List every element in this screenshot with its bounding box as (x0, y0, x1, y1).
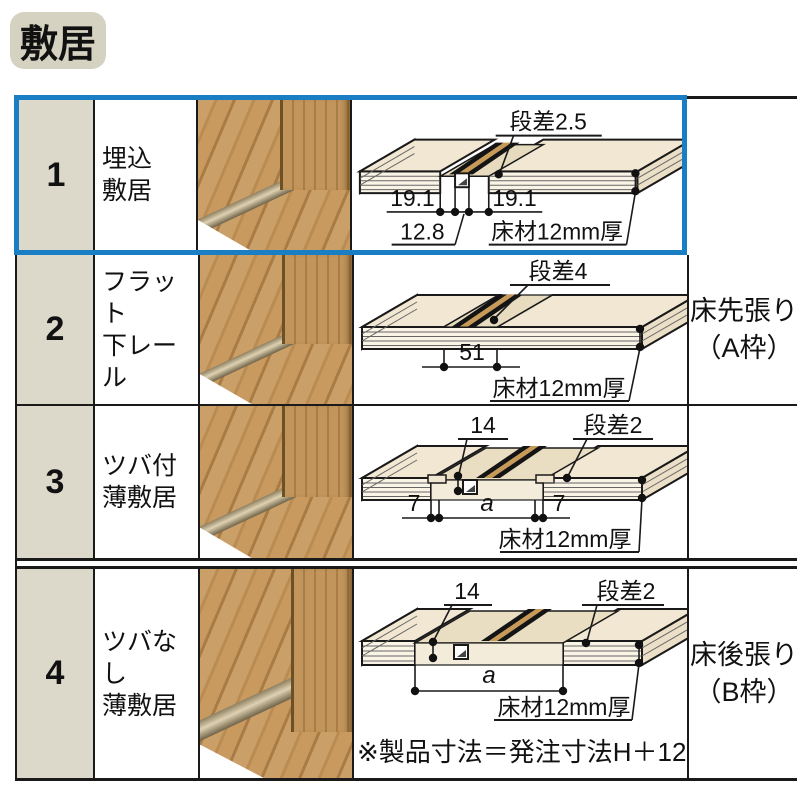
photo-corner (198, 220, 250, 250)
row-1-diagram: 段差2.5 19.1 19.1 12.8 床材12mm厚 (352, 100, 682, 250)
photo-door (282, 255, 352, 344)
dim-right-label: 19.1 (492, 185, 536, 211)
row-2-diagram: 段差4 51 床材12mm厚 (354, 255, 689, 404)
dim-left-label: 19.1 (390, 185, 434, 211)
photo-door (280, 100, 350, 190)
wood-floor-photo (200, 569, 352, 778)
row-2-photo (200, 255, 354, 404)
row-3-name-line1: ツバ付 (102, 450, 198, 482)
embedded-sill-section-drawing: 段差2.5 19.1 19.1 12.8 床材12mm厚 (352, 100, 682, 249)
row-4-diagram: 14 段差2 a 床材12mm厚 ※製品寸法＝発注寸法H＋12 (354, 569, 689, 778)
row-4-number: 4 (17, 569, 95, 778)
dim-center-label: a (480, 490, 493, 517)
photo-door (282, 406, 352, 497)
row-3-diagram: 14 段差2 7 a 7 床材12mm厚 (354, 406, 689, 558)
row-1-name: 埋込 敷居 (95, 100, 198, 250)
dim-center-label: 51 (459, 339, 485, 365)
row-1-name-line1: 埋込 (102, 143, 196, 175)
flanged-thin-sill-section-drawing: 14 段差2 7 a 7 床材12mm厚 (354, 406, 687, 558)
row-option-4[interactable]: 4 ツバなし 薄敷居 (15, 569, 797, 781)
page-title: 敷居 (10, 12, 106, 69)
flat-rail-section-drawing: 段差4 51 床材12mm厚 (354, 255, 687, 405)
row-3-number: 3 (17, 406, 95, 558)
catalog-page: 敷居 1 埋込 敷居 (0, 0, 800, 800)
wood-floor-photo (200, 406, 352, 558)
install-type-b-label: 床後張り （B枠） (689, 569, 799, 778)
step-height-label: 段差4 (529, 258, 588, 284)
flangeless-thin-sill-section-drawing: 14 段差2 a 床材12mm厚 (354, 569, 687, 727)
wood-floor-photo (198, 100, 350, 250)
row-option-3[interactable]: 3 ツバ付 薄敷居 (15, 406, 797, 558)
dim-bottom-label: 12.8 (400, 219, 444, 245)
row-option-1-selected[interactable]: 1 埋込 敷居 (14, 95, 687, 255)
floor-thickness-label: 床材12mm厚 (498, 694, 631, 720)
row-3-name-line2: 薄敷居 (102, 482, 198, 514)
row-option-2[interactable]: 2 フラット 下レール (15, 255, 797, 406)
row-2-number: 2 (17, 255, 95, 404)
row-2-name-line2: 下レール (102, 330, 198, 394)
install-type-b-line2: （B枠） (694, 674, 793, 710)
row-3-photo (200, 406, 354, 558)
dim-right-label: 7 (553, 490, 566, 516)
photo-corner (200, 745, 264, 778)
install-type-a-label: 床先張り （A枠） (689, 255, 799, 404)
step-height-label: 段差2 (584, 412, 643, 438)
row-3-name: ツバ付 薄敷居 (95, 406, 200, 558)
dim-center-label: a (482, 662, 495, 689)
row-1-name-line2: 敷居 (102, 175, 196, 207)
table-top-line (687, 96, 797, 99)
floor-thickness-label: 床材12mm厚 (491, 219, 623, 245)
install-type-a-line1: 床先張り (690, 293, 798, 329)
row-2-name-line1: フラット (102, 266, 198, 330)
row-4-name-line1: ツバなし (102, 626, 198, 690)
wood-floor-photo (200, 255, 352, 404)
photo-corner (200, 374, 252, 404)
photo-corner (200, 528, 252, 558)
section-divider-double-line (15, 558, 797, 569)
step-height-label: 段差2.5 (510, 109, 587, 135)
row-4-photo (200, 569, 354, 778)
floor-thickness-label: 床材12mm厚 (499, 526, 632, 552)
row-4-name-line2: 薄敷居 (102, 690, 198, 722)
top-width-label: 14 (470, 412, 496, 438)
row-3-label-empty (689, 406, 799, 558)
install-type-a-line2: （A枠） (694, 330, 793, 366)
row-4-name: ツバなし 薄敷居 (95, 569, 200, 778)
product-dimension-note: ※製品寸法＝発注寸法H＋12 (357, 732, 687, 769)
floor-thickness-label: 床材12mm厚 (493, 375, 626, 401)
step-height-label: 段差2 (597, 578, 656, 604)
top-width-label: 14 (454, 578, 480, 604)
row-2-name: フラット 下レール (95, 255, 200, 404)
install-type-b-line1: 床後張り (690, 637, 798, 673)
photo-door (291, 569, 352, 732)
row-1-photo (198, 100, 352, 250)
dim-left-label: 7 (408, 490, 421, 516)
row-1-number: 1 (19, 100, 95, 250)
